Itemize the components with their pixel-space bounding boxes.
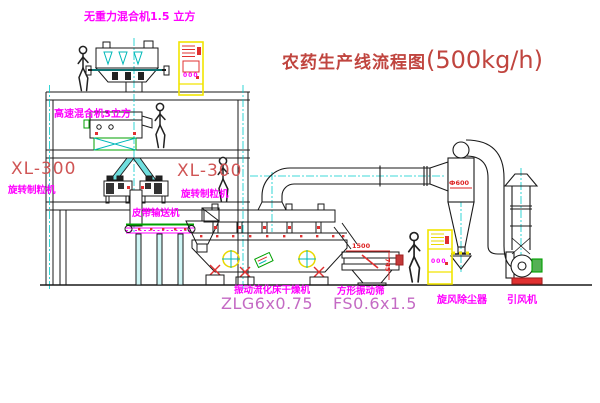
gravity-mixer-drawing xyxy=(86,41,169,92)
person-figure-2 xyxy=(155,103,165,147)
person-figure-4 xyxy=(409,233,420,282)
belt-conveyor-label: 皮带输送机 xyxy=(132,209,180,219)
screen-model-label: FS0.6x1.5 xyxy=(333,296,417,312)
granulator-left-drawing xyxy=(104,176,132,203)
cabinet-1-mark: 000 xyxy=(183,73,199,79)
vibrating-screen-drawing xyxy=(334,223,403,286)
logo-tag xyxy=(255,253,273,268)
screen-height-dimension: 745 xyxy=(384,258,391,272)
granulator-left-model-label: XL-300 xyxy=(11,161,76,178)
cabinet-2-mark: 000 xyxy=(431,259,447,265)
control-cabinet-1 xyxy=(179,42,203,95)
cyclone-diameter-dimension: Ф600 xyxy=(449,180,469,187)
cad-process-flow-screenshot: 农药生产线流程图(500kg/h) 无重力混合机1.5 立方 高速混合机3立方 … xyxy=(0,0,600,403)
fan-drawing xyxy=(506,252,542,284)
control-cabinet-2 xyxy=(428,230,452,284)
title-text: 农药生产线流程图 xyxy=(282,48,426,73)
title-capacity: (500kg/h) xyxy=(426,46,543,74)
granulator-right-model-label: XL-300 xyxy=(177,163,242,180)
person-figure-1 xyxy=(78,46,88,90)
drawing-title: 农药生产线流程图(500kg/h) xyxy=(282,46,543,74)
exhaust-duct xyxy=(262,162,448,202)
cyclone-label: 旋风除尘器 xyxy=(437,296,487,306)
gravity-mixer-label: 无重力混合机1.5 立方 xyxy=(84,11,195,22)
highspeed-mixer-label: 高速混合机3立方 xyxy=(54,110,131,120)
granulator-left-label: 旋转制粒机 xyxy=(8,186,56,196)
granulator-right-label: 旋转制粒机 xyxy=(181,190,229,200)
belt-conveyor-drawing xyxy=(125,225,195,286)
dryer-model-label: ZLG6x0.75 xyxy=(221,296,313,312)
fan-label: 引风机 xyxy=(507,296,537,306)
screen-length-dimension: 1500 xyxy=(352,243,370,250)
spring-mounts xyxy=(206,265,328,285)
